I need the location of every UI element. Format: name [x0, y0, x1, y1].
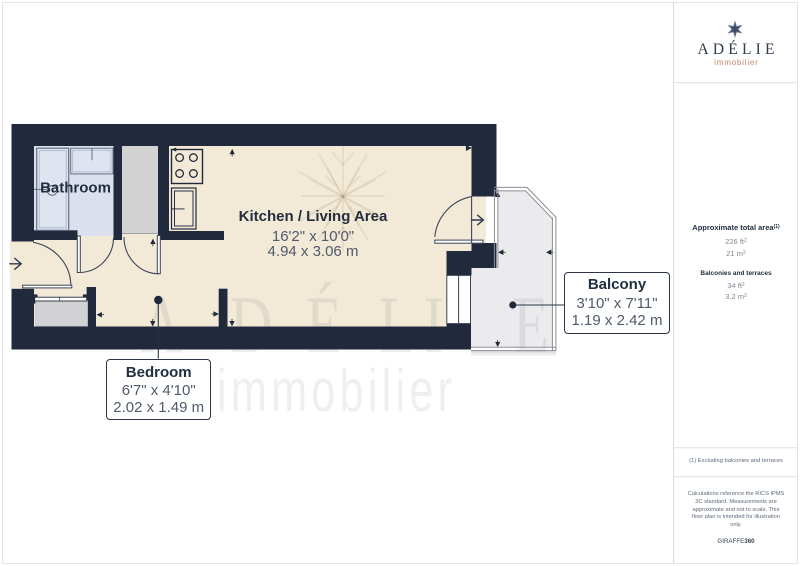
- svg-text:immobilier: immobilier: [217, 358, 456, 425]
